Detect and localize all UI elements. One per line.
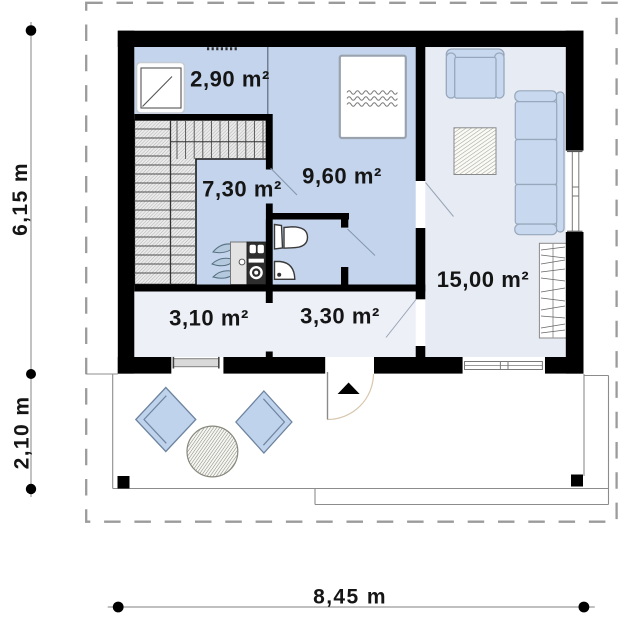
svg-text:3,10 m²: 3,10 m²	[169, 305, 249, 330]
svg-text:7,30 m²: 7,30 m²	[202, 176, 282, 201]
svg-text:8,45 m: 8,45 m	[313, 586, 387, 609]
svg-text:9,60 m²: 9,60 m²	[302, 163, 382, 188]
svg-text:3,30 m²: 3,30 m²	[300, 303, 380, 328]
svg-text:15,00 m²: 15,00 m²	[437, 267, 529, 292]
svg-text:2,10 m: 2,10 m	[11, 396, 34, 470]
svg-text:2,90 m²: 2,90 m²	[190, 66, 270, 91]
svg-text:6,15 m: 6,15 m	[9, 162, 32, 236]
